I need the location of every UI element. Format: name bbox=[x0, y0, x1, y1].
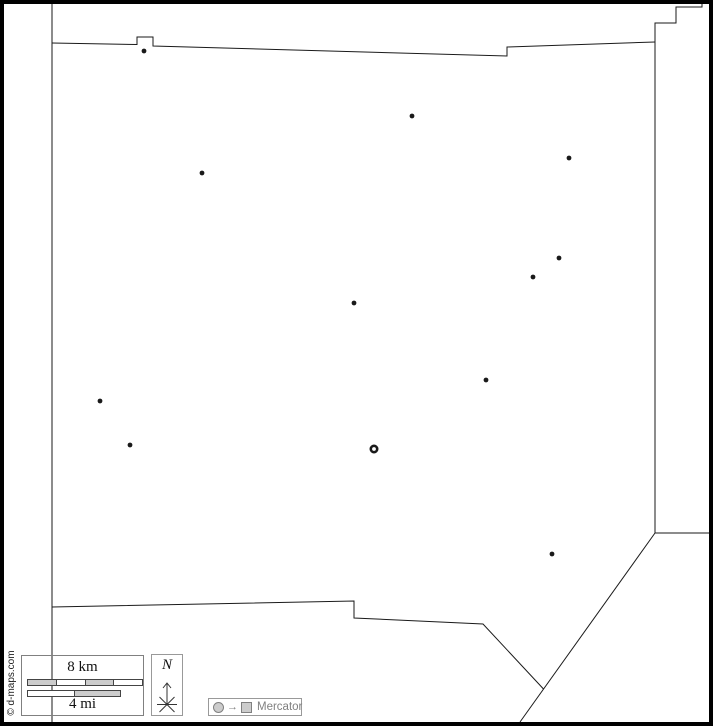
scale-bar: 8 km 4 mi bbox=[21, 655, 144, 716]
county-seat-marker bbox=[371, 446, 377, 452]
boundary-northeast-steps bbox=[655, 4, 702, 533]
town-marker bbox=[142, 49, 147, 54]
boundary-north-line bbox=[52, 37, 655, 56]
town-marker bbox=[484, 378, 489, 383]
town-marker bbox=[352, 301, 357, 306]
scale-segment bbox=[56, 680, 85, 685]
scale-segment bbox=[28, 680, 56, 685]
town-marker bbox=[550, 552, 555, 557]
compass-star-icon bbox=[152, 675, 182, 715]
town-marker bbox=[200, 171, 205, 176]
circle-marker-icon bbox=[213, 702, 224, 713]
scale-segment bbox=[113, 680, 142, 685]
city-markers bbox=[98, 49, 572, 557]
square-marker-icon bbox=[241, 702, 252, 713]
projection-label: Mercator bbox=[257, 701, 302, 713]
town-marker bbox=[98, 399, 103, 404]
map-canvas bbox=[0, 0, 713, 726]
projection-legend: → Mercator bbox=[208, 698, 302, 716]
town-marker bbox=[128, 443, 133, 448]
scale-km-bar bbox=[27, 679, 143, 686]
north-label: N bbox=[152, 657, 182, 674]
town-marker bbox=[531, 275, 536, 280]
boundary-southeast-diagonal bbox=[520, 533, 655, 722]
scale-km-label: 8 km bbox=[22, 659, 143, 675]
town-marker bbox=[567, 156, 572, 161]
town-marker bbox=[557, 256, 562, 261]
north-arrow-box: N bbox=[151, 654, 183, 716]
map-page: 8 km 4 mi N → Mercator © d-maps.com bbox=[0, 0, 713, 726]
scale-mi-label: 4 mi bbox=[22, 696, 143, 712]
boundary-lines bbox=[52, 4, 709, 722]
town-marker bbox=[410, 114, 415, 119]
scale-segment bbox=[85, 680, 114, 685]
arrow-right-icon: → bbox=[227, 703, 238, 712]
image-frame bbox=[0, 0, 713, 726]
copyright-label: © d-maps.com bbox=[6, 649, 20, 717]
